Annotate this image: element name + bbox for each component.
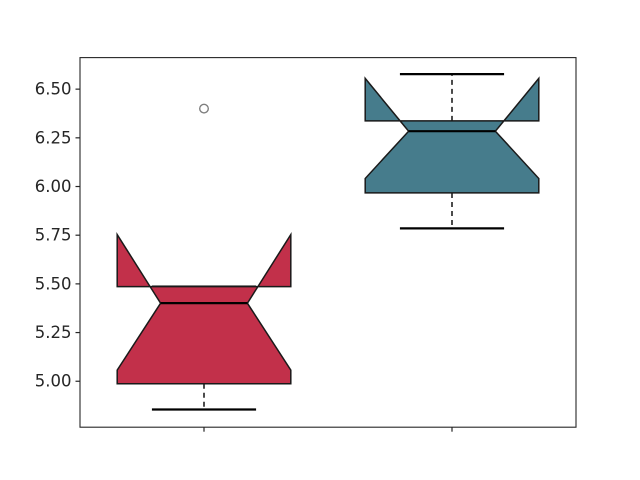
y-tick-label: 6.25 bbox=[35, 128, 72, 147]
y-tick-label: 5.50 bbox=[35, 274, 72, 293]
y-tick-label: 6.00 bbox=[35, 177, 72, 196]
y-tick-label: 6.50 bbox=[35, 80, 72, 99]
y-tick-label: 5.75 bbox=[35, 226, 72, 245]
y-tick-label: 5.25 bbox=[35, 323, 72, 342]
boxplot-figure: 5.005.255.505.756.006.256.50 bbox=[0, 0, 640, 480]
boxplot-canvas: 5.005.255.505.756.006.256.50 bbox=[0, 0, 640, 480]
y-tick-label: 5.00 bbox=[35, 372, 72, 391]
